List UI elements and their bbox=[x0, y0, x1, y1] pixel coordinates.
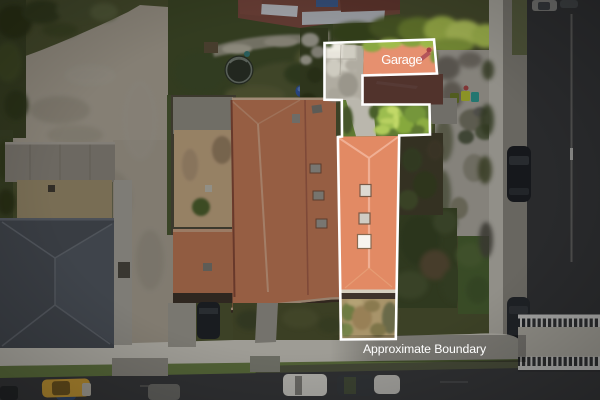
svg-text:Approximate Boundary: Approximate Boundary bbox=[363, 342, 487, 356]
svg-text:Garage: Garage bbox=[381, 52, 422, 67]
